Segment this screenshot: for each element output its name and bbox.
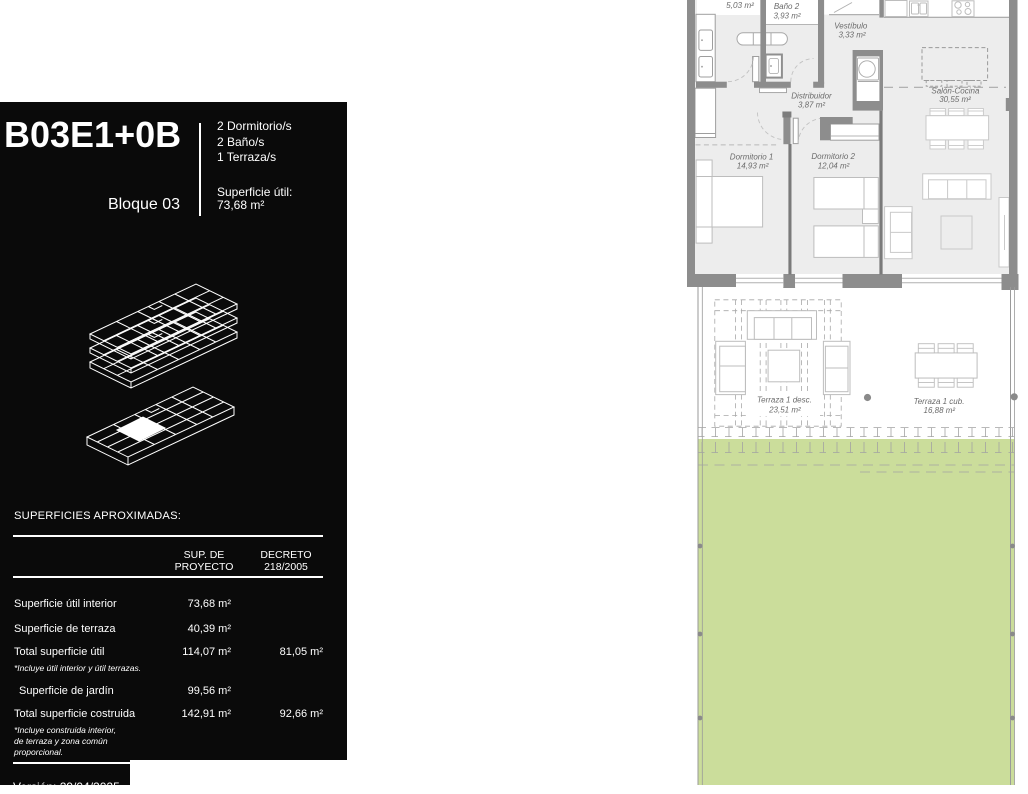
svg-text:Vestíbulo: Vestíbulo <box>834 22 868 31</box>
svg-text:Dormitorio 1: Dormitorio 1 <box>730 153 774 162</box>
svg-text:23,51 m²: 23,51 m² <box>768 406 801 415</box>
svg-text:3,87 m²: 3,87 m² <box>798 101 825 110</box>
svg-text:Terraza 1 cub.: Terraza 1 cub. <box>914 397 965 406</box>
svg-text:3,33 m²: 3,33 m² <box>838 31 865 40</box>
svg-text:16,88 m²: 16,88 m² <box>924 406 956 415</box>
svg-text:5,03 m²: 5,03 m² <box>726 1 754 10</box>
svg-text:Distribuidor: Distribuidor <box>791 92 832 101</box>
svg-text:Terraza 1 desc.: Terraza 1 desc. <box>757 396 812 405</box>
svg-text:Baño 2: Baño 2 <box>774 2 800 11</box>
svg-text:30,55 m²: 30,55 m² <box>939 95 971 104</box>
svg-text:Dormitorio 2: Dormitorio 2 <box>811 152 855 161</box>
svg-text:3,93 m²: 3,93 m² <box>773 12 800 21</box>
svg-text:12,04 m²: 12,04 m² <box>818 162 850 171</box>
svg-text:14,93 m²: 14,93 m² <box>737 162 769 171</box>
